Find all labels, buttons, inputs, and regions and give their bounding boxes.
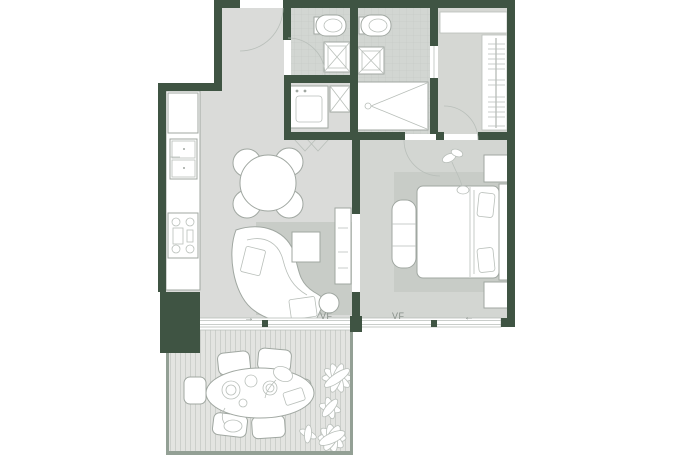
washer-knob: [304, 90, 307, 93]
coffee-table: [292, 232, 320, 262]
dining-table: [240, 155, 296, 211]
wall-bath-spine: [350, 8, 358, 134]
sofa-cushion: [289, 296, 318, 319]
wall-terrace-corner: [350, 316, 362, 332]
slide-arrow-living: →: [244, 313, 254, 324]
kitchen: [166, 91, 200, 290]
slide-arrow-bedroom: ←: [464, 312, 474, 323]
wall-seg-c: [478, 132, 514, 140]
wall-hall-left: [214, 0, 222, 88]
terrace-railing-left: [166, 353, 169, 453]
wall-seg-b: [436, 132, 444, 140]
walk-in-shower: [356, 82, 428, 130]
wall-divider-upper: [352, 140, 360, 214]
wardrobe-cabinet: [440, 12, 507, 33]
wall-living-north: [284, 132, 405, 140]
wall-left-block: [160, 292, 200, 353]
terrace-railing-bottom: [166, 451, 352, 455]
floor-plan-canvas: VF VF → ←: [0, 0, 700, 466]
vf-label-living: VF: [320, 311, 333, 321]
sink-drain-bottom: [183, 167, 185, 169]
pillow: [477, 192, 495, 218]
wall-window-corner-right: [501, 318, 515, 327]
window-mullion-living: [262, 320, 268, 327]
wall-step: [158, 83, 222, 91]
wall-entry-jamb: [283, 0, 291, 40]
toilet: [316, 15, 346, 36]
wall-hall-right: [284, 75, 291, 140]
nightstand-bottom: [484, 282, 509, 308]
window-mullion-bedroom: [431, 320, 437, 327]
side-table: [319, 293, 339, 313]
dining-set: [233, 148, 303, 218]
wall-under-bath1: [288, 75, 354, 83]
floor-plan-svg: VF VF → ←: [0, 0, 700, 466]
terrace-chair: [184, 377, 206, 404]
toilet-2: [361, 15, 391, 36]
terrace-railing-right: [350, 332, 353, 455]
fridge: [168, 93, 198, 133]
wall-top: [283, 0, 513, 8]
window-bedroom: [360, 318, 501, 327]
wall-left-exterior: [158, 88, 166, 292]
wall-right-exterior: [507, 0, 515, 322]
washer-knob: [296, 90, 299, 93]
bedroom-bench: [392, 200, 416, 268]
kitchen-sink-unit: [170, 139, 197, 179]
nightstand-top: [484, 155, 509, 182]
terrace-chair: [251, 415, 285, 439]
tv-sideboard: [335, 208, 351, 284]
vf-label-bedroom: VF: [392, 311, 405, 321]
sink-drain-top: [183, 148, 185, 150]
pillow: [477, 247, 495, 273]
